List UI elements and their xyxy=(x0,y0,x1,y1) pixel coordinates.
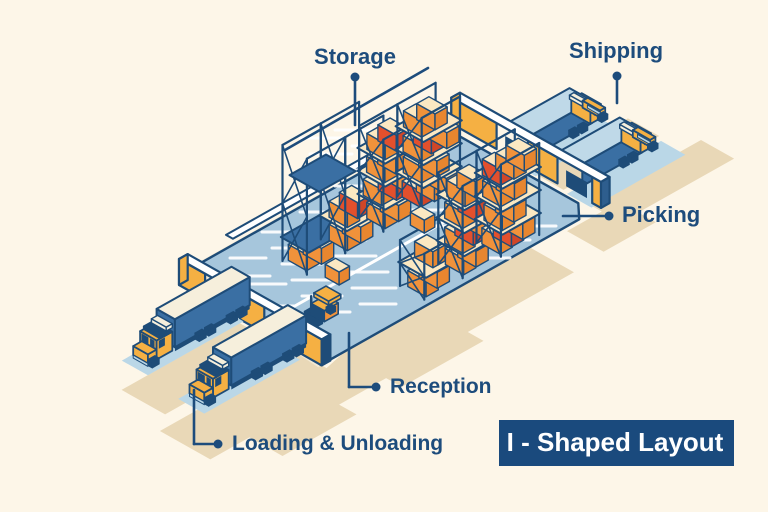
svg-text:Loading & Unloading: Loading & Unloading xyxy=(232,432,443,455)
svg-text:Reception: Reception xyxy=(390,375,492,398)
svg-text:Storage: Storage xyxy=(314,44,396,69)
svg-text:Picking: Picking xyxy=(622,202,700,227)
svg-text:Shipping: Shipping xyxy=(569,38,663,63)
svg-text:I - Shaped Layout: I - Shaped Layout xyxy=(507,427,724,457)
